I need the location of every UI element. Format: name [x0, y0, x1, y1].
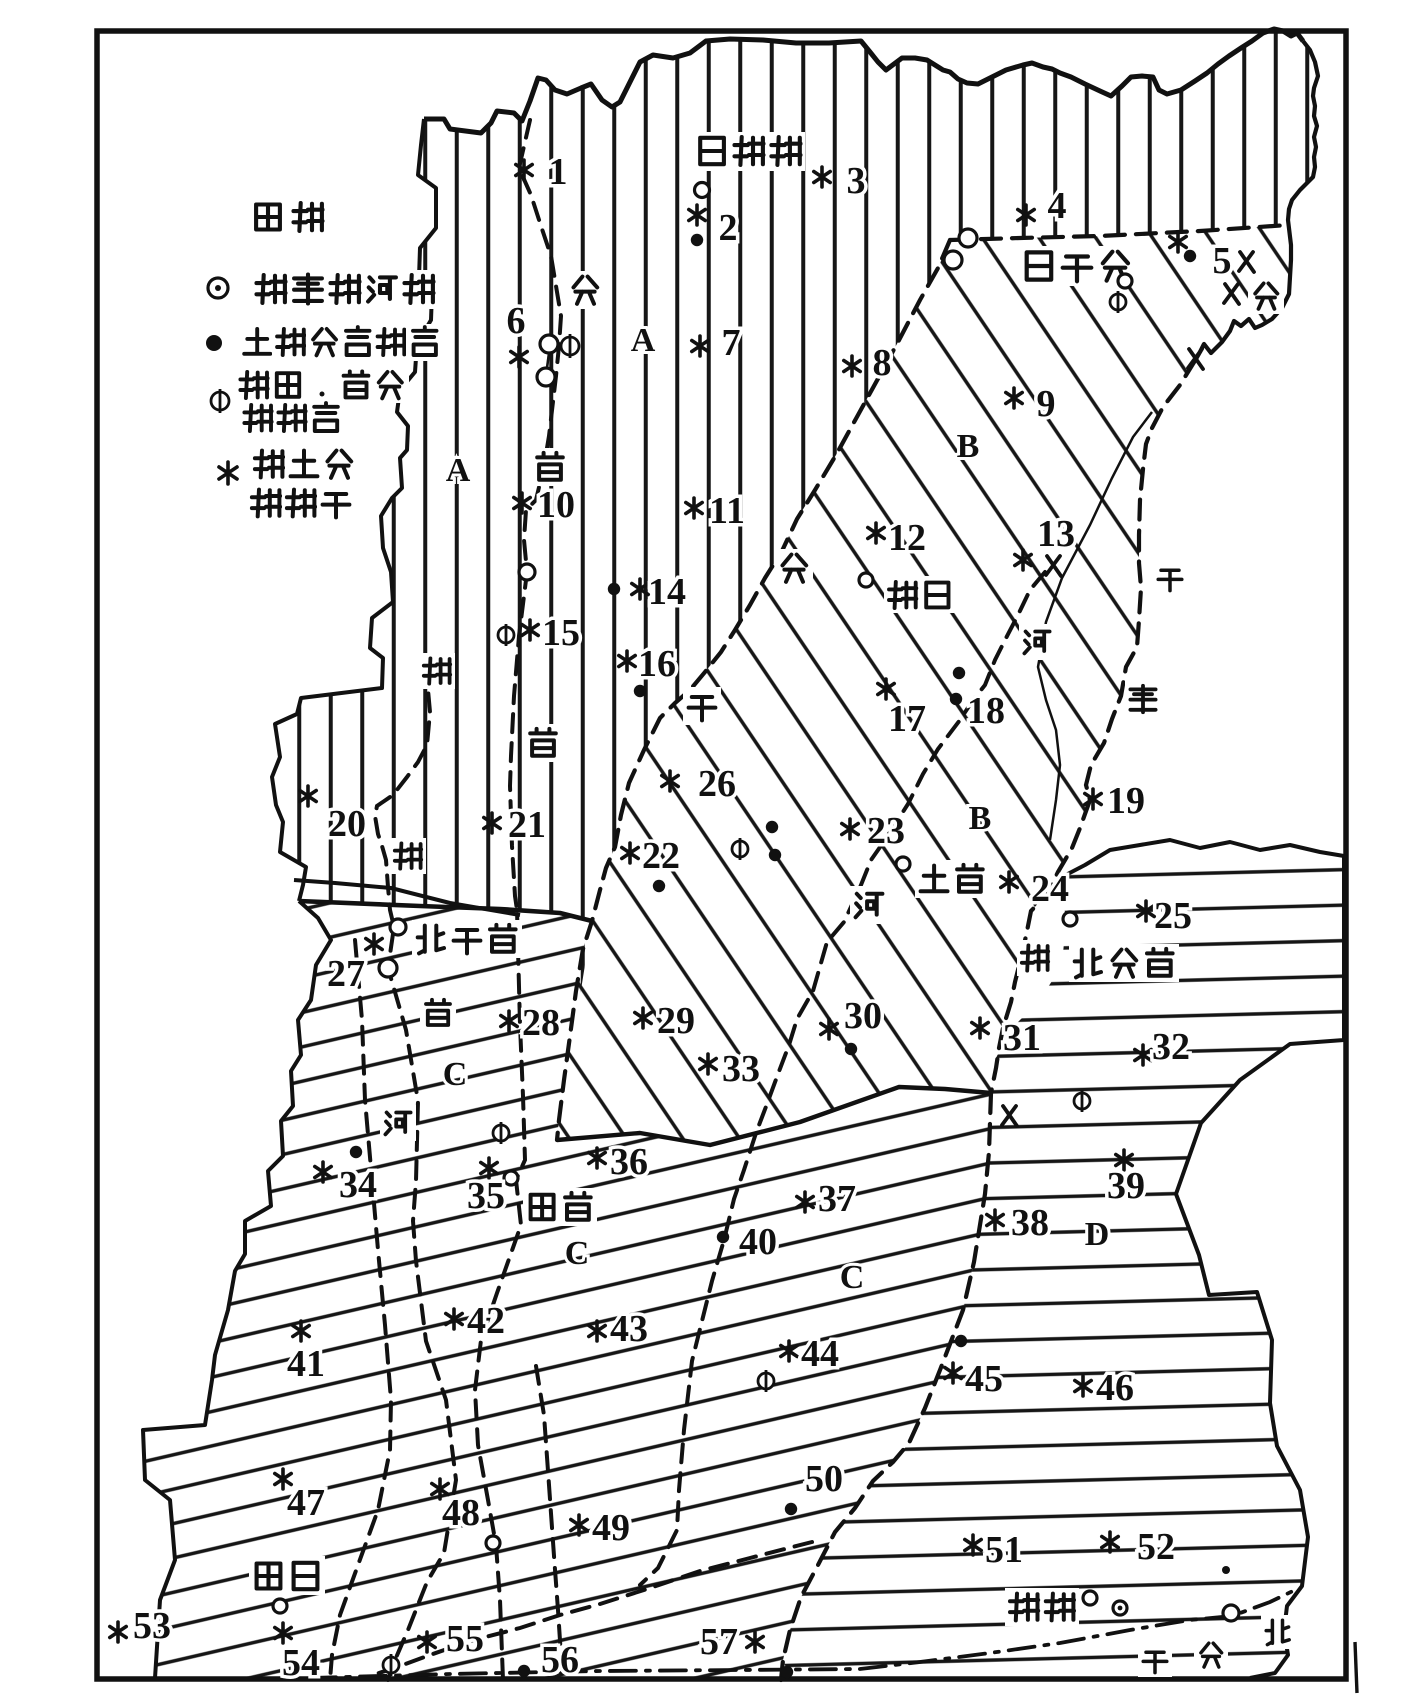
svg-text:3: 3 [847, 160, 866, 202]
svg-text:31: 31 [1003, 1017, 1041, 1059]
svg-text:19: 19 [1107, 780, 1145, 822]
svg-text:35: 35 [467, 1175, 505, 1217]
svg-text:18: 18 [967, 690, 1005, 732]
svg-text:57: 57 [700, 1621, 738, 1663]
svg-text:39: 39 [1107, 1165, 1145, 1207]
svg-text:B: B [969, 800, 992, 837]
svg-text:4: 4 [1048, 185, 1067, 227]
svg-text:A: A [446, 452, 471, 489]
svg-text:43: 43 [610, 1308, 648, 1350]
svg-text:40: 40 [739, 1221, 777, 1263]
svg-text:38: 38 [1011, 1202, 1049, 1244]
svg-text:27: 27 [327, 953, 365, 995]
svg-text:49: 49 [592, 1507, 630, 1549]
svg-text:D: D [1085, 1216, 1110, 1253]
svg-text:45: 45 [965, 1358, 1003, 1400]
svg-text:C: C [565, 1235, 590, 1272]
svg-text:17: 17 [888, 698, 926, 740]
svg-text:C: C [840, 1259, 865, 1296]
svg-text:16: 16 [638, 643, 676, 685]
svg-text:14: 14 [648, 571, 686, 613]
svg-text:B: B [957, 428, 980, 465]
svg-text:47: 47 [287, 1482, 325, 1524]
svg-text:6: 6 [507, 300, 526, 342]
svg-text:9: 9 [1037, 383, 1056, 425]
svg-text:50: 50 [805, 1458, 843, 1500]
svg-text:34: 34 [339, 1164, 377, 1206]
svg-text:55: 55 [446, 1618, 484, 1660]
svg-text:22: 22 [642, 835, 680, 877]
svg-text:52: 52 [1137, 1526, 1175, 1568]
svg-text:42: 42 [467, 1300, 505, 1342]
svg-text:A: A [631, 322, 656, 359]
svg-text:12: 12 [888, 517, 926, 559]
svg-text:5: 5 [1213, 240, 1232, 282]
svg-text:20: 20 [328, 803, 366, 845]
svg-text:29: 29 [657, 1000, 695, 1042]
svg-text:32: 32 [1152, 1026, 1190, 1068]
svg-text:25: 25 [1154, 895, 1192, 937]
svg-text:13: 13 [1037, 513, 1075, 555]
svg-text:2: 2 [719, 207, 738, 249]
svg-text:54: 54 [282, 1642, 320, 1684]
svg-text:11: 11 [709, 490, 745, 532]
svg-text:44: 44 [801, 1333, 839, 1375]
svg-text:36: 36 [610, 1141, 648, 1183]
svg-text:37: 37 [818, 1178, 856, 1220]
svg-text:41: 41 [287, 1343, 325, 1385]
svg-text:48: 48 [442, 1492, 480, 1534]
svg-text:C: C [443, 1056, 468, 1093]
svg-text:46: 46 [1096, 1367, 1134, 1409]
svg-text:56: 56 [541, 1639, 579, 1681]
svg-text:10: 10 [537, 484, 575, 526]
svg-text:33: 33 [722, 1048, 760, 1090]
svg-text:51: 51 [985, 1529, 1023, 1571]
svg-text:23: 23 [867, 810, 905, 852]
svg-text:21: 21 [508, 804, 546, 846]
svg-text:26: 26 [698, 763, 736, 805]
svg-text:53: 53 [133, 1605, 171, 1647]
svg-text:24: 24 [1031, 868, 1069, 910]
svg-text:1: 1 [549, 151, 568, 193]
svg-text:15: 15 [542, 612, 580, 654]
svg-text:7: 7 [722, 322, 741, 364]
svg-text:28: 28 [522, 1002, 560, 1044]
svg-text:30: 30 [844, 995, 882, 1037]
svg-text:8: 8 [873, 342, 892, 384]
